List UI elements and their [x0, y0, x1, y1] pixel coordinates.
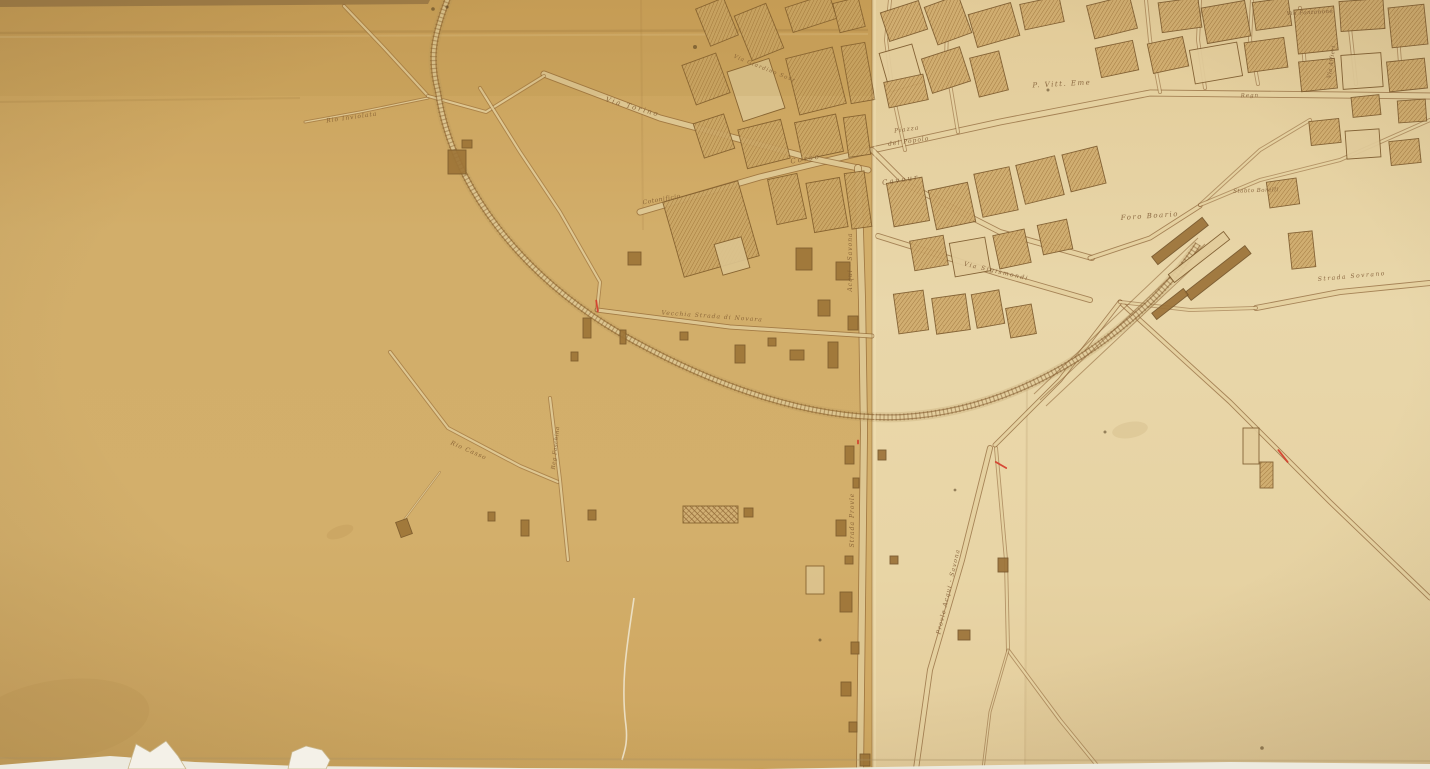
- photo-vignette: [0, 0, 1430, 769]
- historical-map-canvas: CorsoCavourPiazzadel PopoloForo BoarioP.…: [0, 0, 1430, 769]
- map-photo: CorsoCavourPiazzadel PopoloForo BoarioP.…: [0, 0, 1430, 769]
